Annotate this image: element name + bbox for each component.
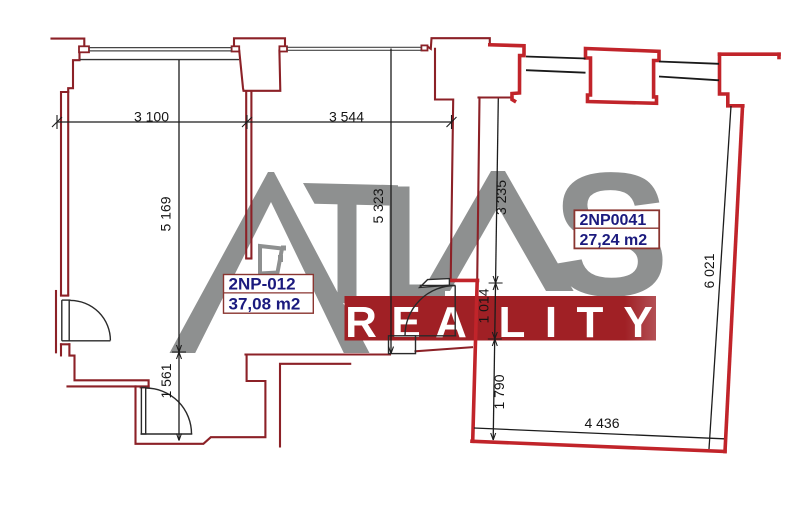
- svg-text:R: R: [345, 298, 377, 347]
- svg-text:27,24 m2: 27,24 m2: [580, 232, 648, 249]
- svg-text:4 436: 4 436: [584, 415, 619, 431]
- svg-text:1 790: 1 790: [491, 374, 507, 409]
- svg-text:2NP-012: 2NP-012: [229, 275, 296, 294]
- svg-text:2NP0041: 2NP0041: [580, 212, 647, 229]
- svg-text:6 021: 6 021: [701, 253, 717, 288]
- svg-text:3 235: 3 235: [493, 180, 509, 215]
- svg-text:37,08 m2: 37,08 m2: [229, 295, 301, 314]
- svg-text:5 169: 5 169: [158, 196, 174, 231]
- svg-text:T: T: [577, 298, 604, 347]
- svg-text:3 544: 3 544: [329, 109, 364, 125]
- svg-text:A: A: [435, 298, 467, 347]
- svg-text:Y: Y: [623, 298, 652, 347]
- svg-text:5 323: 5 323: [370, 188, 386, 223]
- svg-text:I: I: [545, 298, 557, 347]
- svg-text:1 561: 1 561: [158, 363, 174, 398]
- svg-text:1 014: 1 014: [476, 288, 492, 323]
- svg-text:L: L: [499, 298, 526, 347]
- svg-text:3 100: 3 100: [134, 109, 169, 125]
